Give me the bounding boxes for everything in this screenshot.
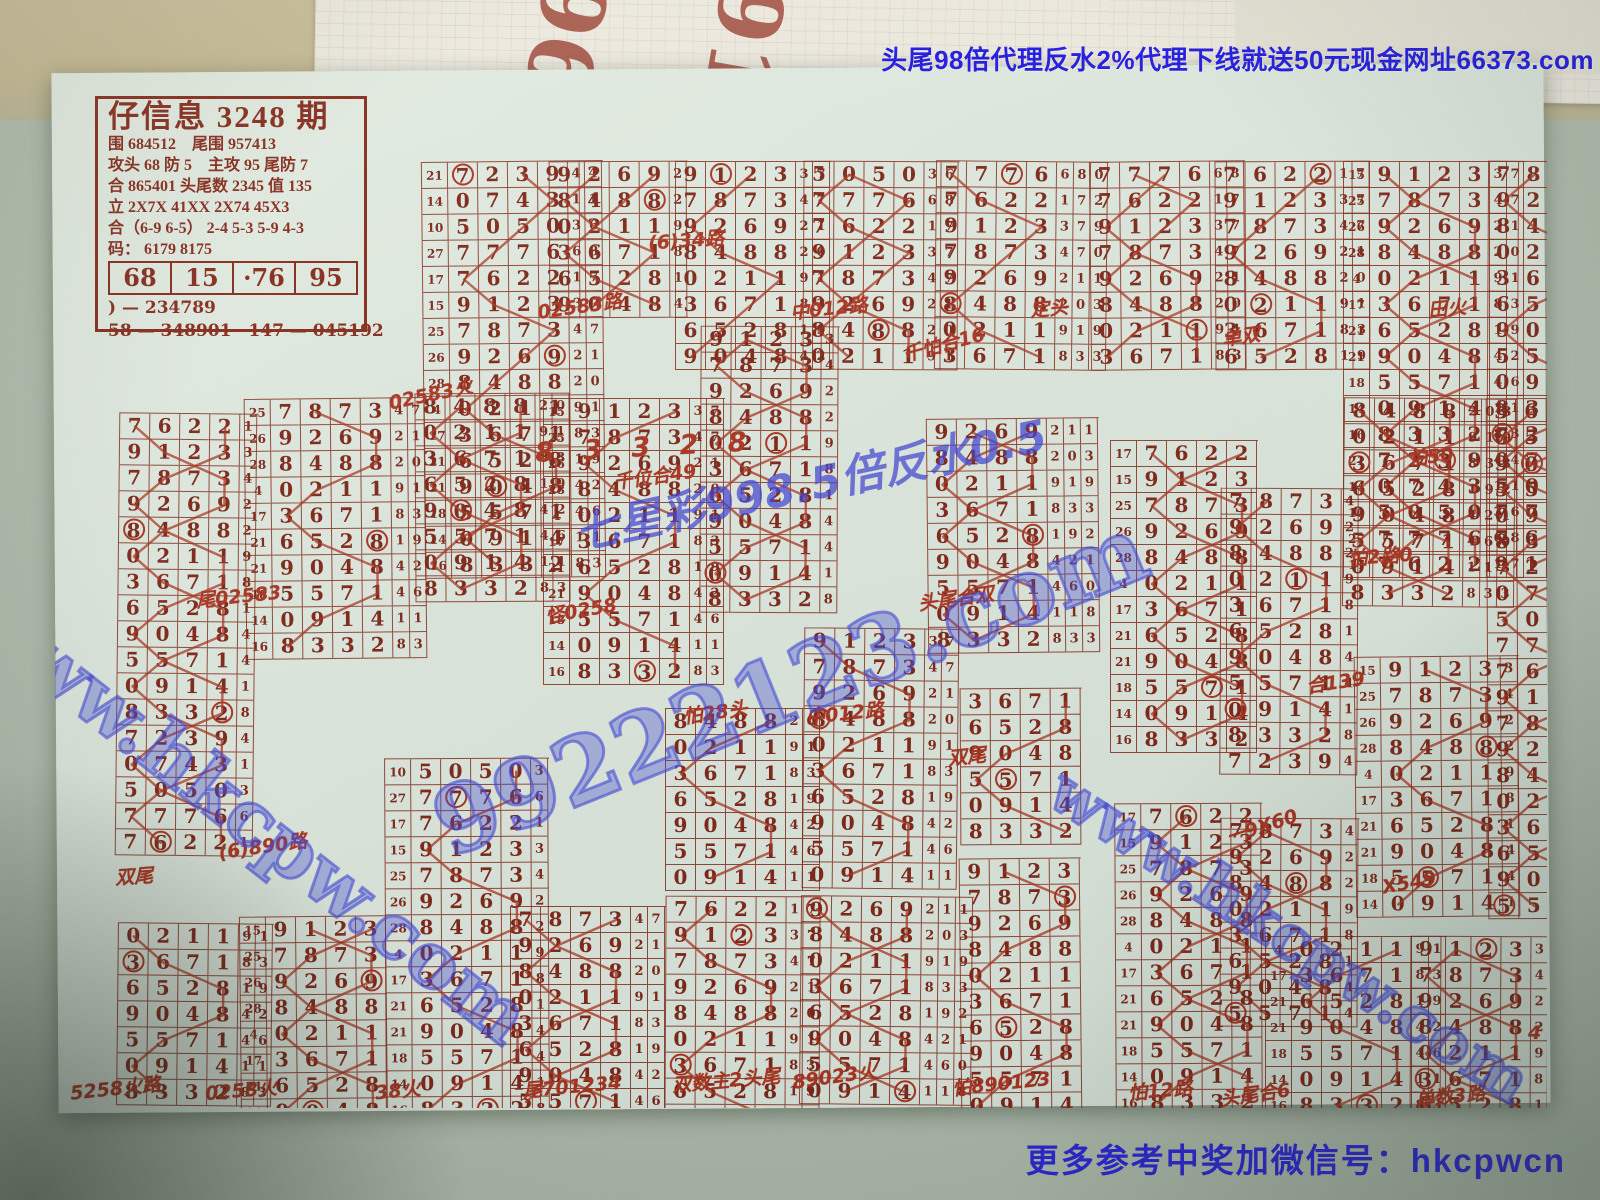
watermark: www.hkcpw.com <box>1036 753 1544 1108</box>
watermark: www.hkcpw.com <box>55 570 547 1061</box>
lottery-sheet-content: 仔信息 3248 期 围 684512 尾围 957413攻头 68 防 5 主… <box>55 68 1547 1108</box>
top-ad-banner: 头尾98倍代理反水2%代理下线就送50元现金网址66373.com <box>881 40 1594 77</box>
watermarks-layer: www.hkcpw.com99222123.com七星彩998.5倍反水0.5w… <box>55 68 1547 1108</box>
contact-line: 更多参考中奖加微信号：hkcpwcn <box>1026 1134 1566 1182</box>
watermark: 七星彩998.5倍反水0.5 <box>568 400 1052 563</box>
watermark: 99222123.com <box>418 494 1162 878</box>
photo-background: 96 91 仔信息 3248 期 围 684512 尾围 957413攻头 68… <box>0 0 1600 1200</box>
